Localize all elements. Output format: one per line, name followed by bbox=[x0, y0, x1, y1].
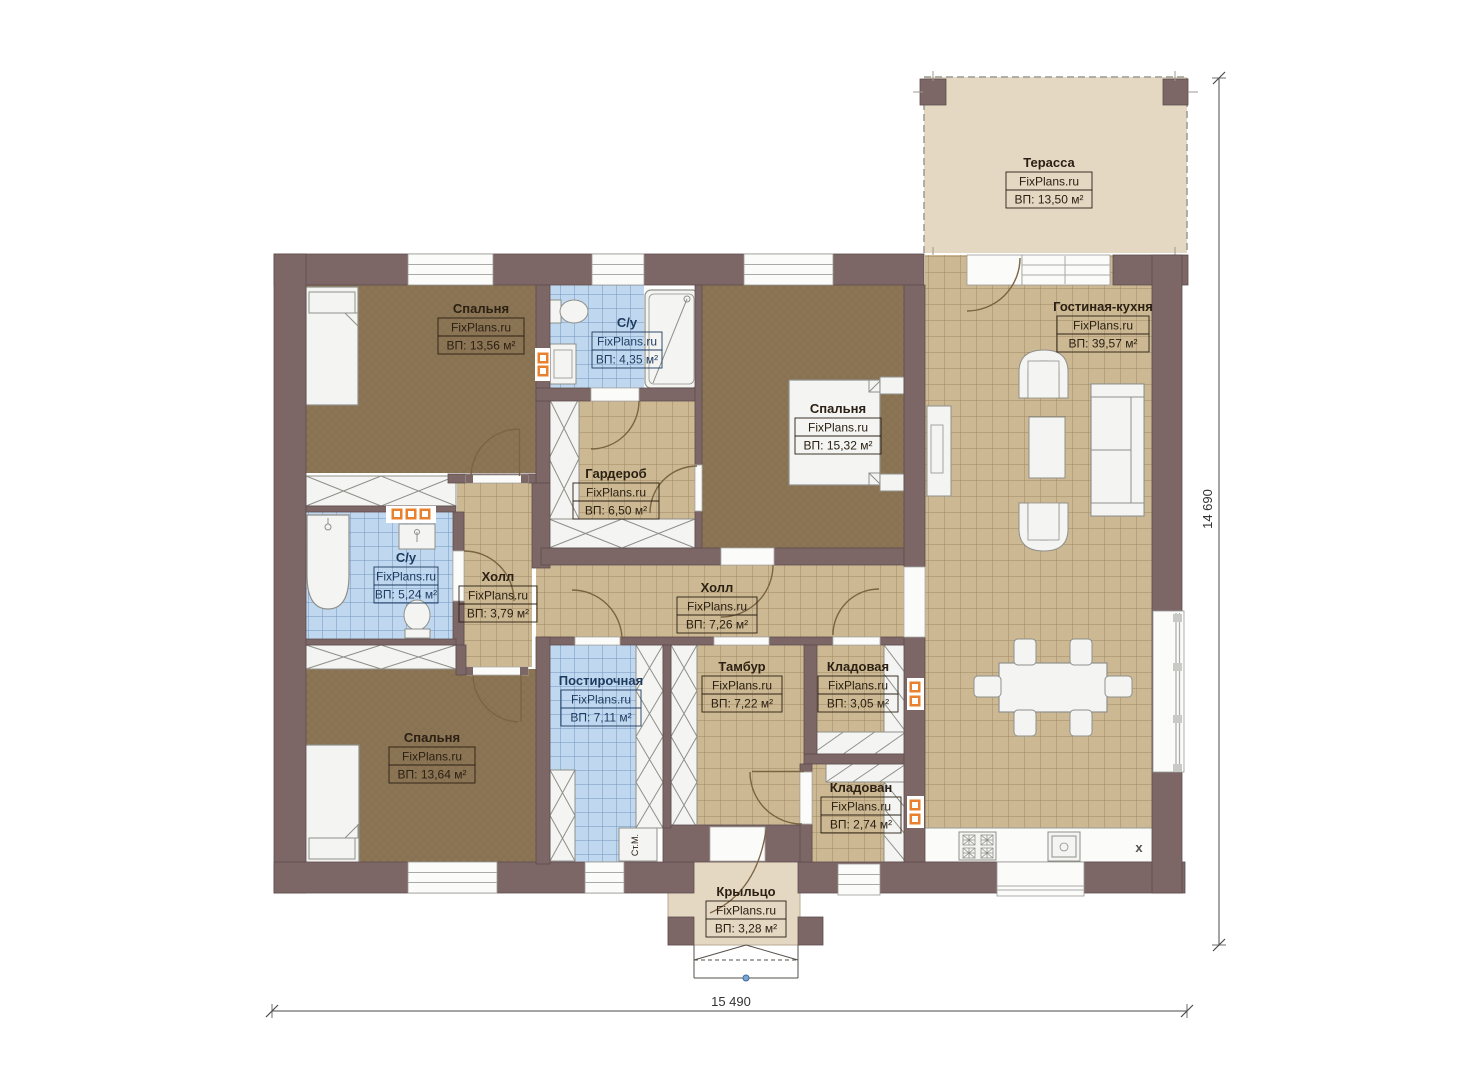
svg-text:FixPlans.ru: FixPlans.ru bbox=[831, 800, 891, 814]
svg-text:ВП: 3,05 м²: ВП: 3,05 м² bbox=[827, 697, 889, 711]
svg-text:Тамбур: Тамбур bbox=[718, 659, 765, 674]
svg-text:Спальня: Спальня bbox=[453, 301, 509, 316]
svg-text:FixPlans.ru: FixPlans.ru bbox=[597, 335, 657, 349]
svg-text:ВП: 15,32 м²: ВП: 15,32 м² bbox=[804, 439, 873, 453]
svg-text:FixPlans.ru: FixPlans.ru bbox=[586, 486, 646, 500]
svg-text:FixPlans.ru: FixPlans.ru bbox=[712, 679, 772, 693]
svg-text:ВП: 7,11 м²: ВП: 7,11 м² bbox=[570, 711, 631, 725]
svg-text:Спальня: Спальня bbox=[404, 730, 460, 745]
svg-text:FixPlans.ru: FixPlans.ru bbox=[571, 693, 631, 707]
svg-text:Терасса: Терасса bbox=[1023, 155, 1075, 170]
svg-text:14 690: 14 690 bbox=[1200, 489, 1215, 529]
svg-text:FixPlans.ru: FixPlans.ru bbox=[1073, 319, 1133, 333]
svg-text:ВП: 4,35 м²: ВП: 4,35 м² bbox=[596, 353, 658, 367]
svg-text:ВП: 3,79 м²: ВП: 3,79 м² bbox=[467, 607, 529, 621]
svg-text:FixPlans.ru: FixPlans.ru bbox=[808, 421, 868, 435]
svg-text:Крыльцо: Крыльцо bbox=[716, 884, 775, 899]
svg-text:FixPlans.ru: FixPlans.ru bbox=[376, 570, 436, 584]
svg-text:Холл: Холл bbox=[482, 569, 515, 584]
svg-text:ВП: 3,28 м²: ВП: 3,28 м² bbox=[715, 922, 777, 936]
svg-text:Ст.М.: Ст.М. bbox=[630, 834, 640, 856]
svg-text:FixPlans.ru: FixPlans.ru bbox=[687, 600, 747, 614]
svg-text:ВП: 13,50 м²: ВП: 13,50 м² bbox=[1015, 193, 1084, 207]
svg-text:Кладован: Кладован bbox=[830, 780, 893, 795]
svg-text:ВП: 7,22 м²: ВП: 7,22 м² bbox=[711, 697, 773, 711]
svg-text:ВП: 6,50 м²: ВП: 6,50 м² bbox=[585, 504, 647, 518]
svg-text:x: x bbox=[1135, 840, 1143, 855]
svg-text:Гостиная-кухня: Гостиная-кухня bbox=[1053, 299, 1153, 314]
svg-text:Постирочная: Постирочная bbox=[559, 673, 643, 688]
svg-text:FixPlans.ru: FixPlans.ru bbox=[828, 679, 888, 693]
svg-text:С/у: С/у bbox=[396, 550, 417, 565]
svg-text:ВП: 13,64 м²: ВП: 13,64 м² bbox=[398, 768, 467, 782]
svg-text:ВП: 39,57 м²: ВП: 39,57 м² bbox=[1069, 337, 1138, 351]
svg-text:FixPlans.ru: FixPlans.ru bbox=[402, 750, 462, 764]
svg-text:FixPlans.ru: FixPlans.ru bbox=[1019, 175, 1079, 189]
svg-text:С/у: С/у bbox=[617, 315, 638, 330]
svg-text:Спальня: Спальня bbox=[810, 401, 866, 416]
svg-text:Гардероб: Гардероб bbox=[585, 466, 646, 481]
svg-text:Кладовая: Кладовая bbox=[827, 659, 889, 674]
svg-text:ВП: 5,24 м²: ВП: 5,24 м² bbox=[375, 588, 437, 602]
svg-text:FixPlans.ru: FixPlans.ru bbox=[468, 589, 528, 603]
svg-text:ВП: 13,56 м²: ВП: 13,56 м² bbox=[447, 339, 516, 353]
svg-text:15 490: 15 490 bbox=[711, 994, 751, 1009]
svg-text:FixPlans.ru: FixPlans.ru bbox=[451, 321, 511, 335]
svg-text:ВП: 2,74 м²: ВП: 2,74 м² bbox=[830, 818, 892, 832]
svg-text:Холл: Холл bbox=[701, 580, 734, 595]
svg-text:FixPlans.ru: FixPlans.ru bbox=[716, 904, 776, 918]
svg-text:ВП: 7,26 м²: ВП: 7,26 м² bbox=[686, 618, 748, 632]
